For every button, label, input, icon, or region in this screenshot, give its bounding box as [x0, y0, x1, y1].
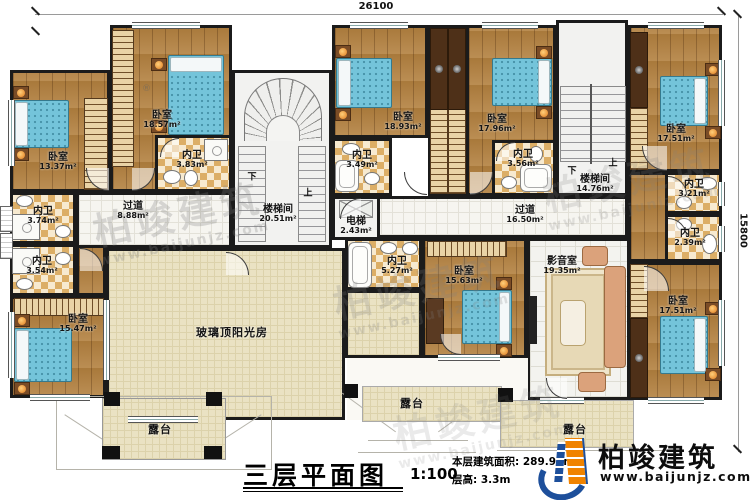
porch-roof-line — [358, 452, 476, 453]
armchair — [578, 372, 606, 392]
window — [8, 100, 15, 166]
label-bedroom-1893: 卧室 18.93m² — [384, 112, 421, 132]
stair-railing — [590, 84, 592, 164]
nightstand — [13, 86, 29, 99]
terrace-center — [362, 386, 502, 422]
terrace-post — [206, 392, 222, 406]
terrace-post — [102, 446, 120, 459]
terrace-post — [344, 384, 358, 398]
right-dimension-label: 15800 — [738, 210, 749, 252]
wardrobe — [430, 108, 448, 194]
toilet — [16, 278, 33, 290]
stair-up-label: 上 — [303, 186, 312, 199]
wardrobe — [427, 241, 507, 257]
window — [482, 22, 538, 29]
window — [718, 226, 725, 252]
label-terrace-center: 露台 — [400, 398, 424, 410]
label-stairwell-2051: 楼梯间 20.51m² — [259, 204, 296, 224]
label-bedroom-1547: 卧室 15.47m² — [59, 314, 96, 334]
top-dimension-label: 26100 — [336, 1, 416, 12]
wardrobe — [630, 108, 648, 170]
nightstand — [335, 108, 351, 121]
toilet — [380, 242, 397, 254]
stair-down-label: 下 — [247, 170, 256, 183]
label-bedroom-1796: 卧室 17.96m² — [478, 114, 515, 134]
room-sunroom-ext — [345, 290, 422, 358]
bed-pillow — [499, 292, 510, 342]
label-bath-239: 内卫 2.39m² — [674, 228, 706, 248]
drawing-scale: 1:100 — [410, 465, 458, 483]
window — [648, 397, 704, 404]
window — [648, 22, 704, 29]
label-media-room: 影音室 19.35m² — [543, 256, 580, 276]
nightstand — [705, 368, 721, 381]
porch-roof-line — [368, 440, 468, 441]
sink — [163, 170, 181, 184]
toilet — [184, 170, 198, 186]
corner-mark — [31, 26, 40, 35]
brand-logo: 柏竣建筑 www.baijunjz.com — [540, 436, 748, 492]
label-bedroom-1751-bottom: 卧室 17.51m² — [659, 296, 696, 316]
bed-pillow — [694, 318, 706, 372]
label-terrace-left: 露台 — [148, 424, 172, 436]
window — [350, 22, 408, 29]
label-bedroom-1337: 卧室 13.37m² — [39, 152, 76, 172]
label-bath-356: 内卫 3.56m² — [507, 149, 539, 169]
window — [718, 60, 725, 126]
armchair — [582, 246, 608, 266]
brand-site: www.baijunjz.com — [600, 469, 750, 484]
dresser — [430, 28, 448, 110]
window — [128, 416, 198, 423]
window — [30, 394, 90, 401]
stair-down-label: 下 — [567, 164, 576, 177]
floor-plan: 26100 15800 — [0, 0, 750, 500]
label-bedroom-1563: 卧室 15.63m² — [445, 266, 482, 286]
label-sunroom: 玻璃顶阳光房 — [196, 327, 268, 339]
label-bath-374: 内卫 3.74m² — [27, 206, 59, 226]
spiral-stair-center — [266, 115, 300, 141]
floor-height-text: 层高: 3.3m — [452, 472, 510, 489]
window — [718, 182, 725, 206]
dresser — [448, 28, 466, 110]
terrace-post — [104, 392, 120, 406]
window — [132, 22, 200, 29]
window — [8, 312, 15, 378]
window — [438, 354, 500, 361]
nightstand — [335, 45, 351, 58]
stair-flight — [238, 146, 266, 242]
label-bath-354: 内卫 3.54m² — [26, 256, 58, 276]
room-hall-888 — [76, 192, 232, 248]
bed-pillow — [694, 78, 706, 124]
logo-building-icon — [565, 438, 588, 484]
dresser — [630, 32, 648, 108]
nightstand — [13, 148, 29, 161]
sink — [501, 176, 517, 189]
wardrobe — [448, 108, 466, 194]
label-bath-527: 内卫 5.27m² — [381, 256, 413, 276]
window — [103, 300, 110, 380]
label-terrace-right: 露台 — [563, 424, 587, 436]
dresser — [630, 318, 648, 398]
terrace-post — [204, 446, 222, 459]
bed-pillow — [16, 330, 29, 380]
bed-pillow — [15, 102, 28, 146]
window — [718, 300, 725, 366]
label-hall-1650: 过道 16.50m² — [506, 205, 543, 225]
title-underline — [243, 487, 403, 489]
stair-up-label: 上 — [608, 156, 617, 169]
nightstand — [705, 126, 721, 139]
nightstand — [536, 46, 552, 59]
label-elevator: 电梯 2.43m² — [340, 216, 372, 236]
nightstand — [536, 106, 552, 119]
label-bath-349: 内卫 3.49m² — [346, 150, 378, 170]
label-bedroom-1857: 卧室 18.57m² — [143, 110, 180, 130]
tv — [529, 296, 537, 344]
label-stairwell-1476: 楼梯间 14.76m² — [576, 174, 613, 194]
door-arc — [404, 172, 427, 195]
registered-mark: ® — [142, 84, 151, 94]
label-bath-383: 内卫 3.83m² — [176, 150, 208, 170]
stair-flight — [560, 86, 626, 162]
bed-pillow — [538, 60, 550, 104]
sink — [402, 242, 418, 255]
sink — [55, 225, 71, 238]
nightstand — [14, 314, 30, 327]
terrace-post — [498, 388, 513, 402]
label-hall-888: 过道 8.88m² — [117, 201, 149, 221]
bathtub — [348, 242, 372, 288]
nightstand — [14, 382, 30, 395]
wardrobe — [112, 30, 134, 167]
sofa — [604, 266, 626, 368]
room-hall-1650 — [345, 196, 628, 238]
title-underline — [243, 491, 403, 492]
room-entry-right — [628, 172, 668, 262]
coffee-table — [560, 300, 586, 346]
label-bath-321: 内卫 3.21m² — [678, 179, 710, 199]
sink — [364, 172, 380, 185]
bed-pillow — [170, 57, 222, 72]
bed-pillow — [338, 60, 351, 106]
nightstand — [151, 58, 167, 71]
nightstand — [496, 277, 512, 290]
label-bedroom-1751-top: 卧室 17.51m² — [657, 124, 694, 144]
top-dimension-line — [35, 14, 723, 15]
